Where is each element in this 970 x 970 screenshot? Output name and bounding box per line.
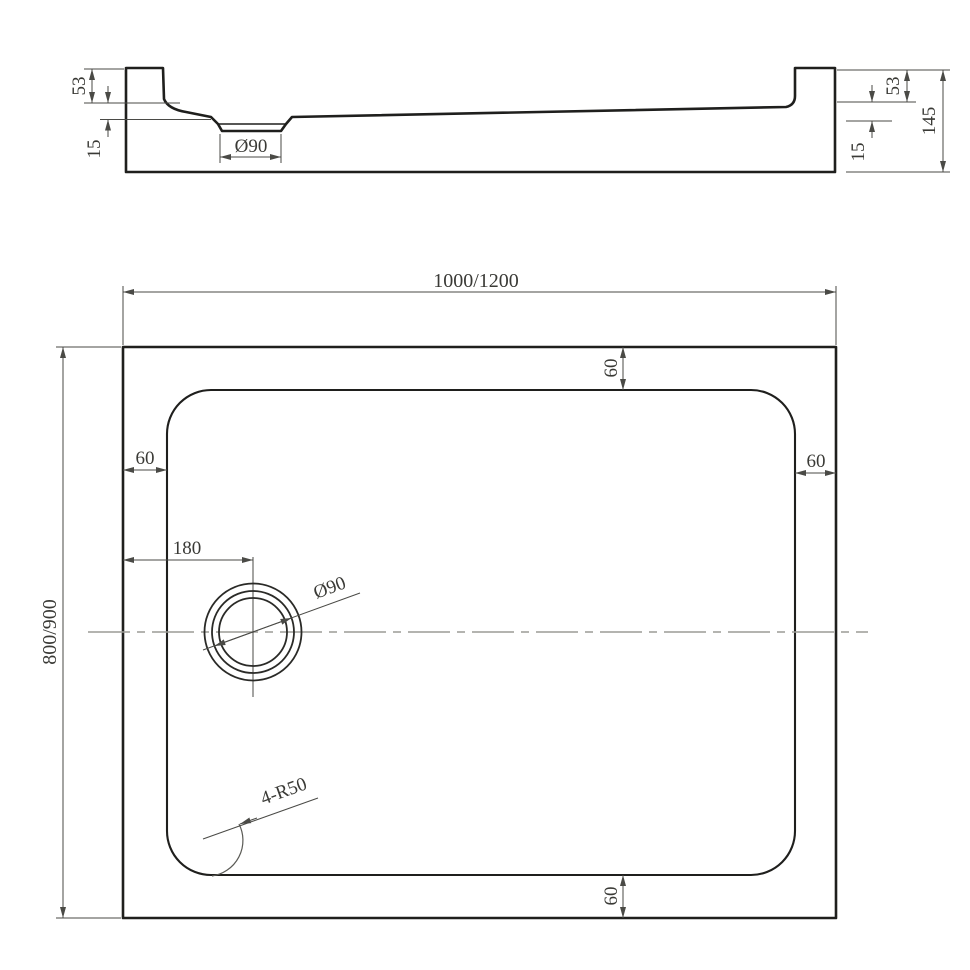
dim-label-height-145: 145 [919,107,940,136]
dim-label-inset-left: 60 [136,448,155,469]
dim-corner-radius: 4-R50 [203,774,318,876]
dim-label-section-drain: Ø90 [235,136,268,157]
dim-inset-bottom: 60 [601,875,623,918]
section-view: 53 15 Ø90 53 15 [69,68,950,172]
dim-label-inset-bottom: 60 [601,887,622,906]
dim-label-width: 1000/1200 [433,270,519,292]
corner-radius-arc [212,824,243,876]
technical-drawing-page: 53 15 Ø90 53 15 [0,0,970,970]
dim-label-left-53: 53 [69,77,90,96]
dim-label-inset-right: 60 [807,451,826,472]
dim-drain-offset: 180 [123,538,253,560]
dim-section-left-15: 15 [84,86,211,159]
dim-section-right-53: 53 [837,70,950,102]
plan-view: Ø90 1000/1200 800/900 60 60 [39,270,868,918]
shower-tray-drawing: 53 15 Ø90 53 15 [0,0,970,970]
dim-inset-top: 60 [601,347,623,390]
dim-label-left-15: 15 [84,140,105,159]
section-profile-outline [126,68,835,172]
dim-label-depth: 800/900 [39,599,61,665]
dim-label-inset-top: 60 [601,359,622,378]
dim-label-right-15: 15 [848,143,869,162]
dim-plan-width: 1000/1200 [123,270,836,345]
dim-label-right-53: 53 [883,77,904,96]
dim-section-drain: Ø90 [220,134,281,163]
dim-inset-left: 60 [123,448,167,470]
dim-inset-right: 60 [795,451,836,473]
dim-label-drain-offset: 180 [173,538,202,559]
